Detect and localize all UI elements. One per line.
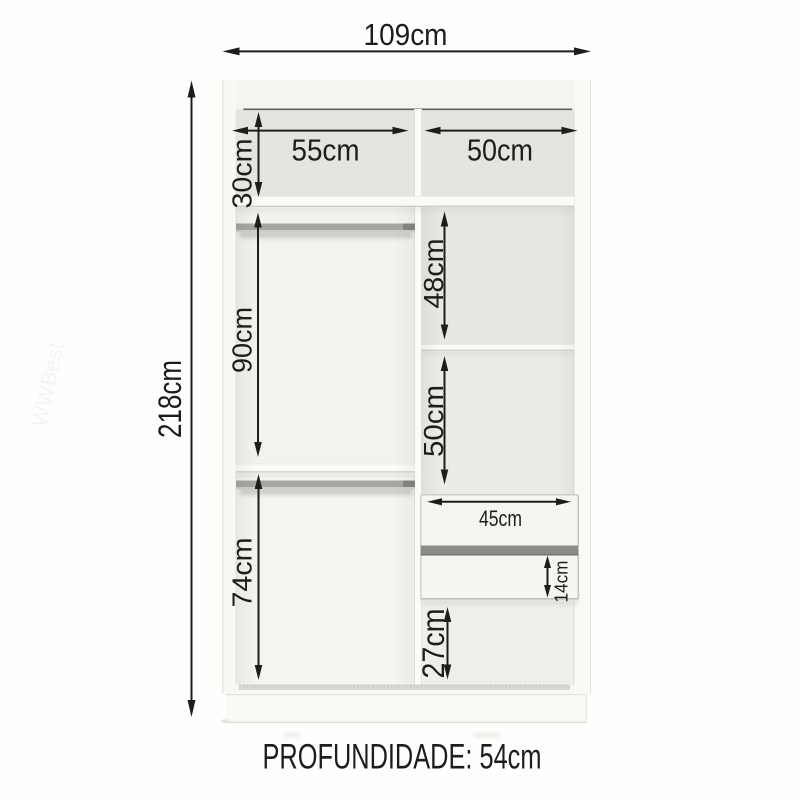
svg-text:50cm: 50cm — [418, 385, 449, 457]
svg-text:55cm: 55cm — [292, 133, 360, 168]
svg-text:109cm: 109cm — [364, 17, 448, 52]
svg-text:48cm: 48cm — [418, 239, 449, 309]
svg-text:30cm: 30cm — [227, 139, 258, 209]
svg-text:PROFUNDIDADE: 54cm: PROFUNDIDADE: 54cm — [263, 738, 542, 777]
svg-text:90cm: 90cm — [227, 307, 258, 373]
svg-text:45cm: 45cm — [479, 506, 522, 531]
svg-text:74cm: 74cm — [227, 538, 258, 608]
svg-text:14cm: 14cm — [551, 561, 572, 603]
svg-text:218cm: 218cm — [152, 360, 188, 438]
svg-text:27cm: 27cm — [415, 609, 451, 679]
svg-text:50cm: 50cm — [467, 133, 533, 168]
